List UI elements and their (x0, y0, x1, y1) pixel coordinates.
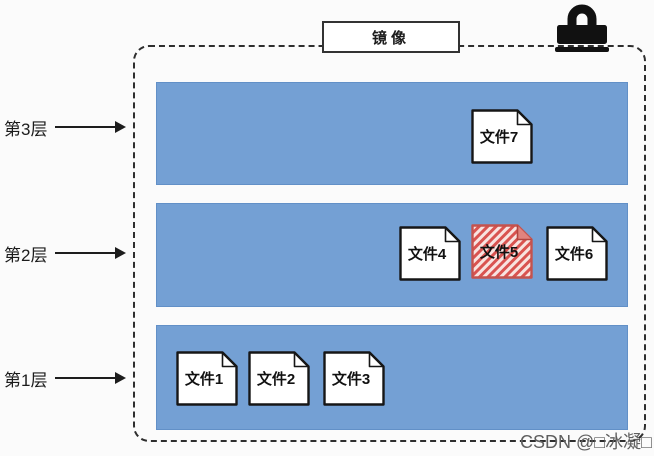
file-icon: 文件3 (323, 351, 385, 406)
layer-pointer-row: 第1层 (4, 367, 130, 389)
arrow-right-icon (55, 377, 116, 379)
layer-pointer-row: 第2层 (4, 242, 130, 264)
file-label: 文件2 (248, 351, 304, 406)
file-icon: 文件6 (546, 226, 608, 281)
layer-row: 文件1文件2文件3 (156, 325, 628, 430)
file-label: 文件4 (399, 226, 455, 281)
file-icon-highlighted: 文件5 (471, 224, 533, 279)
layer-row: 文件7 (156, 82, 628, 185)
watermark: CSDN @□冰凝□ (520, 428, 652, 454)
layer-row: 文件4文件5文件6 (156, 203, 628, 307)
file-icon: 文件4 (399, 226, 461, 281)
arrow-right-icon (55, 252, 116, 254)
file-label: 文件1 (176, 351, 232, 406)
file-label: 文件5 (471, 224, 527, 279)
arrow-right-icon (55, 126, 116, 128)
layer-label: 第1层 (4, 366, 47, 391)
lock-icon (551, 2, 613, 52)
file-icon: 文件2 (248, 351, 310, 406)
image-title: 镜像 (372, 27, 410, 48)
file-icon: 文件1 (176, 351, 238, 406)
image-title-box: 镜像 (322, 21, 460, 53)
layer-label: 第3层 (4, 115, 47, 140)
layer-pointer-row: 第3层 (4, 116, 130, 138)
file-label: 文件3 (323, 351, 379, 406)
diagram-canvas: 镜像 文件7第3层文件4文件5文件6第2层文件1文件2文件3第1层 CSDN @… (0, 0, 654, 456)
file-label: 文件7 (471, 109, 527, 164)
file-label: 文件6 (546, 226, 602, 281)
layer-label: 第2层 (4, 241, 47, 266)
file-icon: 文件7 (471, 109, 533, 164)
